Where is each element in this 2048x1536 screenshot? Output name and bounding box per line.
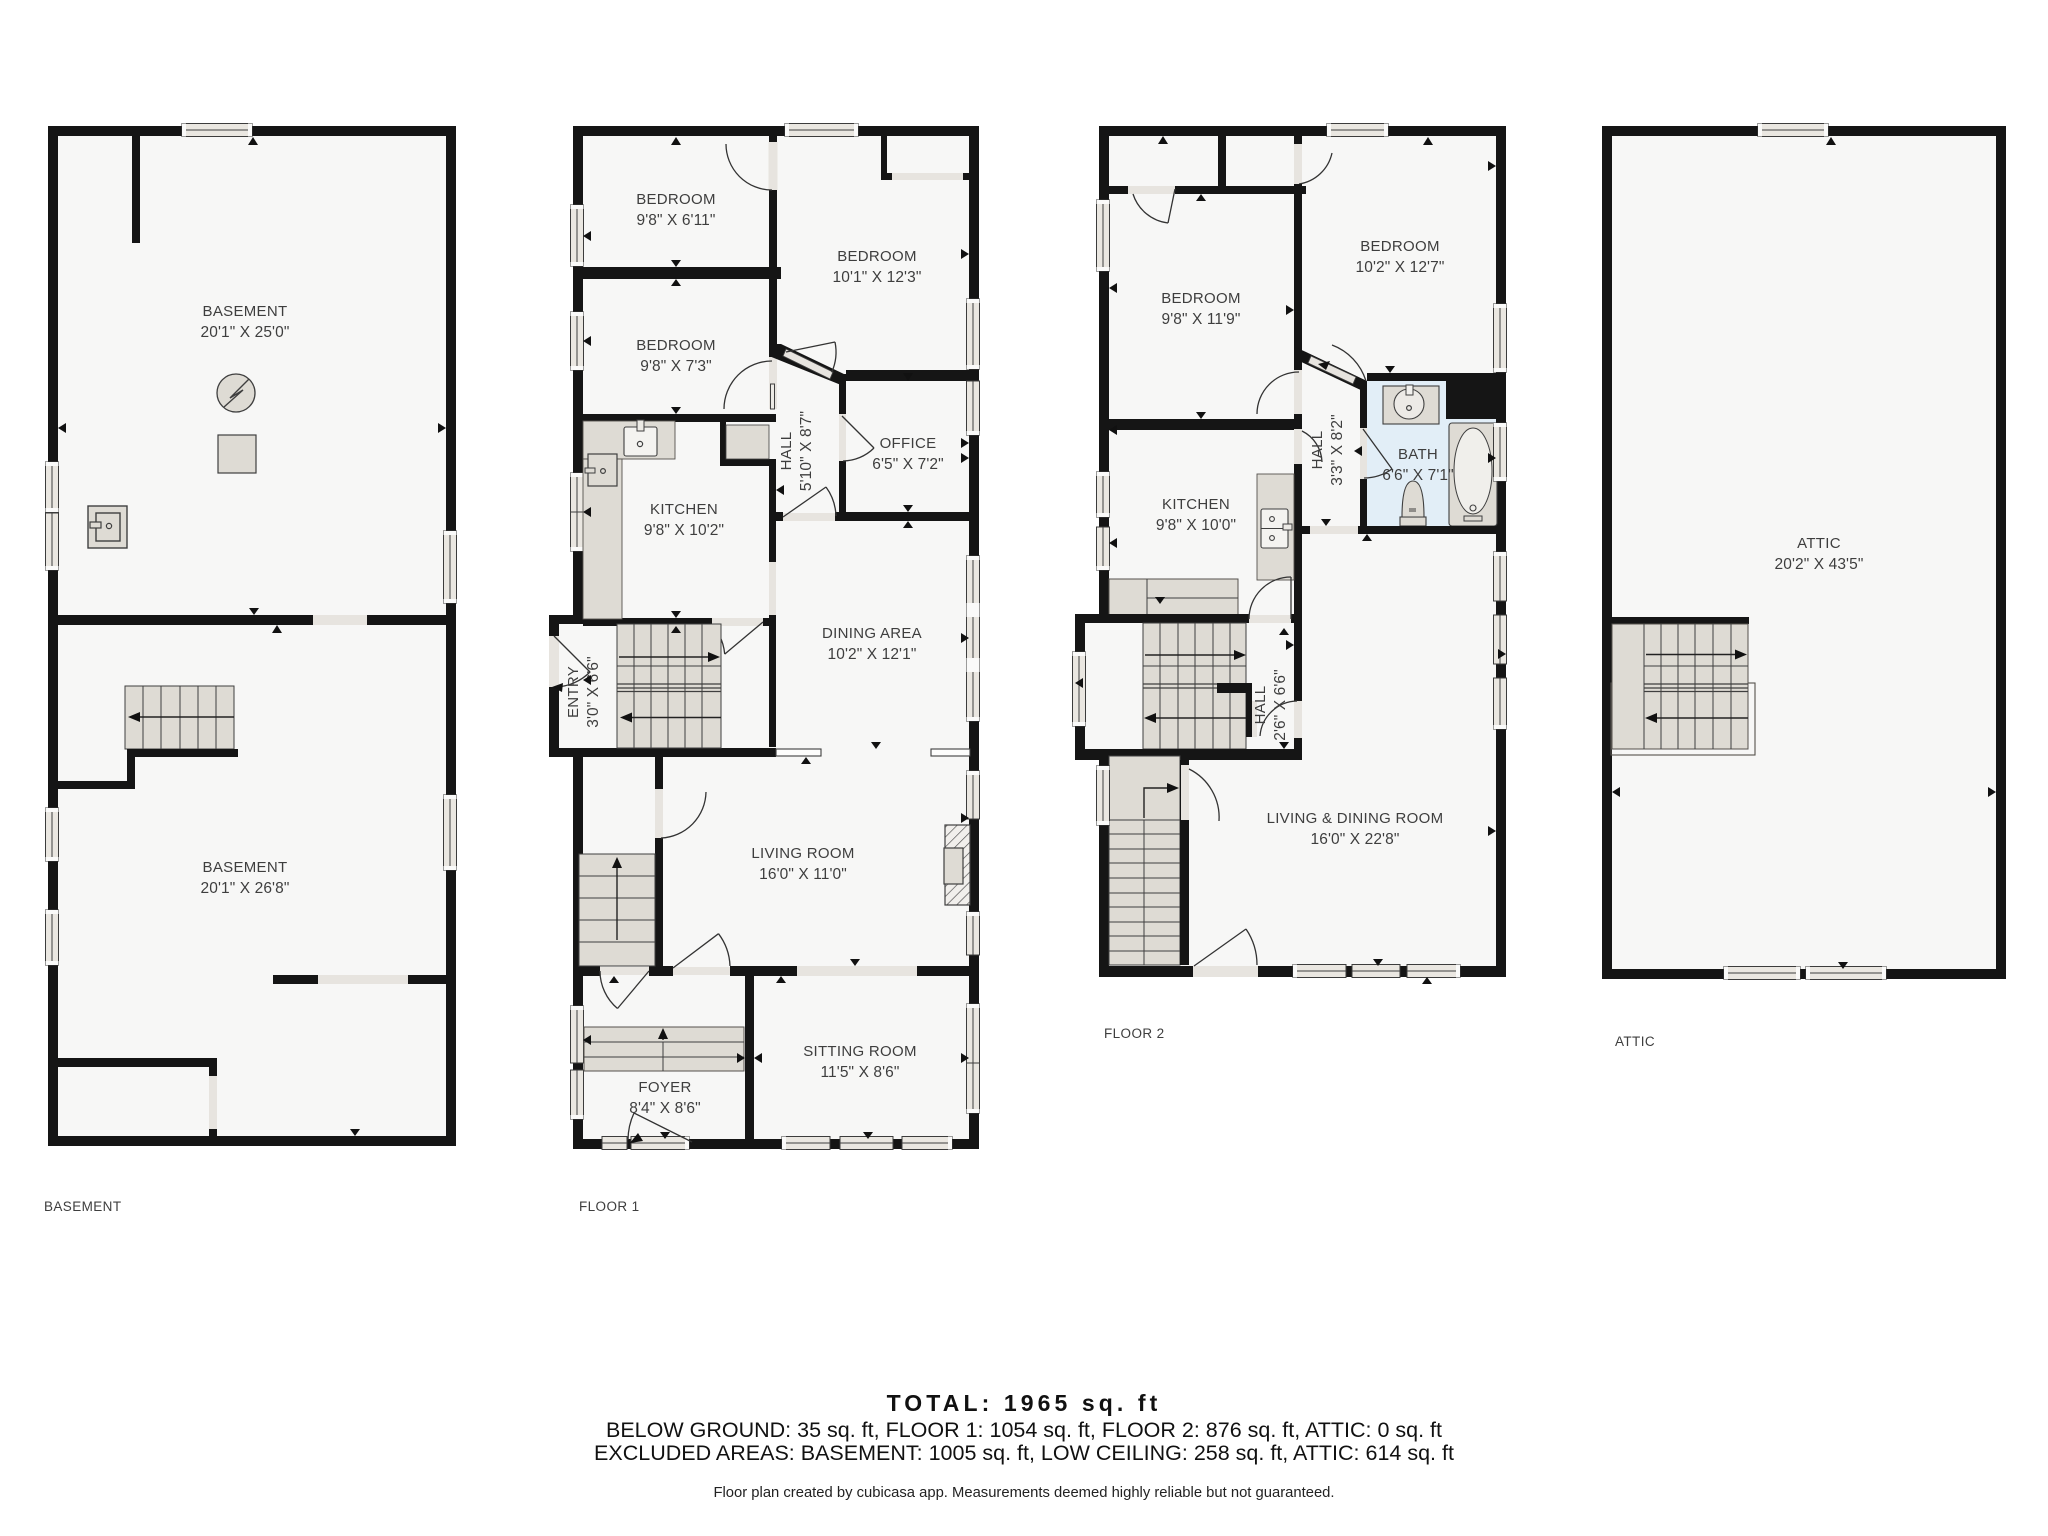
svg-text:8'4" X 8'6": 8'4" X 8'6" [629, 1100, 700, 1117]
svg-text:HALL: HALL [1252, 686, 1269, 725]
svg-text:9'8" X 6'11": 9'8" X 6'11" [636, 212, 715, 229]
svg-text:11'5" X 8'6": 11'5" X 8'6" [820, 1064, 899, 1081]
svg-text:20'2" X 43'5": 20'2" X 43'5" [1775, 556, 1864, 573]
svg-text:BEDROOM: BEDROOM [636, 191, 716, 208]
svg-text:9'8" X 10'2": 9'8" X 10'2" [644, 522, 724, 539]
svg-text:ATTIC: ATTIC [1615, 1034, 1655, 1049]
svg-text:6'6" X 7'1": 6'6" X 7'1" [1382, 467, 1453, 484]
svg-text:9'8" X 11'9": 9'8" X 11'9" [1161, 311, 1240, 328]
svg-text:HALL: HALL [778, 432, 795, 471]
svg-text:KITCHEN: KITCHEN [1162, 496, 1230, 513]
svg-text:10'2" X 12'7": 10'2" X 12'7" [1356, 259, 1445, 276]
svg-text:10'2" X 12'1": 10'2" X 12'1" [828, 646, 917, 663]
svg-text:16'0" X 22'8": 16'0" X 22'8" [1311, 831, 1400, 848]
svg-text:ENTRY: ENTRY [565, 666, 582, 718]
svg-text:9'8" X 10'0": 9'8" X 10'0" [1156, 517, 1236, 534]
svg-text:DINING AREA: DINING AREA [822, 625, 922, 642]
svg-text:FOYER: FOYER [638, 1079, 691, 1096]
svg-text:20'1" X 26'8": 20'1" X 26'8" [201, 880, 290, 897]
svg-text:3'0" X 6'6": 3'0" X 6'6" [585, 656, 602, 727]
svg-text:BEDROOM: BEDROOM [1161, 290, 1241, 307]
svg-text:FLOOR 1: FLOOR 1 [579, 1199, 640, 1214]
svg-text:BELOW GROUND: 35 sq. ft, FLOOR: BELOW GROUND: 35 sq. ft, FLOOR 1: 1054 s… [606, 1418, 1442, 1442]
svg-text:BASEMENT: BASEMENT [203, 859, 288, 876]
svg-text:KITCHEN: KITCHEN [650, 501, 718, 518]
svg-text:5'10" X 8'7": 5'10" X 8'7" [798, 411, 815, 491]
svg-text:16'0" X 11'0": 16'0" X 11'0" [759, 866, 847, 883]
svg-text:OFFICE: OFFICE [880, 435, 937, 452]
svg-text:SITTING ROOM: SITTING ROOM [803, 1043, 917, 1060]
svg-text:HALL: HALL [1309, 431, 1326, 470]
svg-text:BATH: BATH [1398, 446, 1438, 463]
svg-text:EXCLUDED AREAS: BASEMENT: 1005: EXCLUDED AREAS: BASEMENT: 1005 sq. ft, L… [594, 1441, 1454, 1465]
svg-text:20'1" X 25'0": 20'1" X 25'0" [201, 324, 290, 341]
svg-text:6'5" X 7'2": 6'5" X 7'2" [872, 456, 943, 473]
svg-text:10'1" X 12'3": 10'1" X 12'3" [833, 269, 922, 286]
svg-text:2'6" X 6'6": 2'6" X 6'6" [1272, 669, 1289, 740]
svg-text:BEDROOM: BEDROOM [1360, 238, 1440, 255]
svg-text:3'3" X 8'2": 3'3" X 8'2" [1329, 414, 1346, 485]
svg-text:BASEMENT: BASEMENT [44, 1199, 121, 1214]
svg-text:FLOOR 2: FLOOR 2 [1104, 1026, 1165, 1041]
svg-text:Floor plan created by cubicasa: Floor plan created by cubicasa app. Meas… [713, 1485, 1334, 1501]
svg-text:TOTAL: 1965 sq. ft: TOTAL: 1965 sq. ft [887, 1390, 1162, 1416]
svg-text:BEDROOM: BEDROOM [636, 337, 716, 354]
svg-text:LIVING & DINING ROOM: LIVING & DINING ROOM [1267, 810, 1444, 827]
svg-text:9'8" X 7'3": 9'8" X 7'3" [640, 358, 711, 375]
svg-text:BASEMENT: BASEMENT [203, 303, 288, 320]
svg-text:LIVING ROOM: LIVING ROOM [751, 845, 854, 862]
svg-text:BEDROOM: BEDROOM [837, 248, 917, 265]
svg-text:ATTIC: ATTIC [1797, 535, 1841, 552]
